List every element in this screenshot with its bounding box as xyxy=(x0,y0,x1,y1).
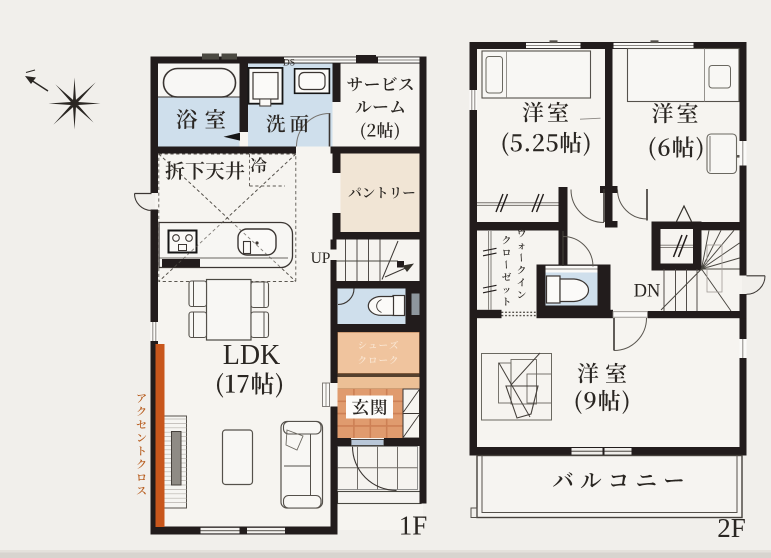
svg-text:2F: 2F xyxy=(717,513,746,543)
svg-text:UP: UP xyxy=(311,250,331,267)
svg-text:1F: 1F xyxy=(399,511,428,541)
svg-text:DN: DN xyxy=(634,282,661,302)
svg-text:LDK: LDK xyxy=(223,340,281,371)
svg-text:DS: DS xyxy=(283,59,295,69)
